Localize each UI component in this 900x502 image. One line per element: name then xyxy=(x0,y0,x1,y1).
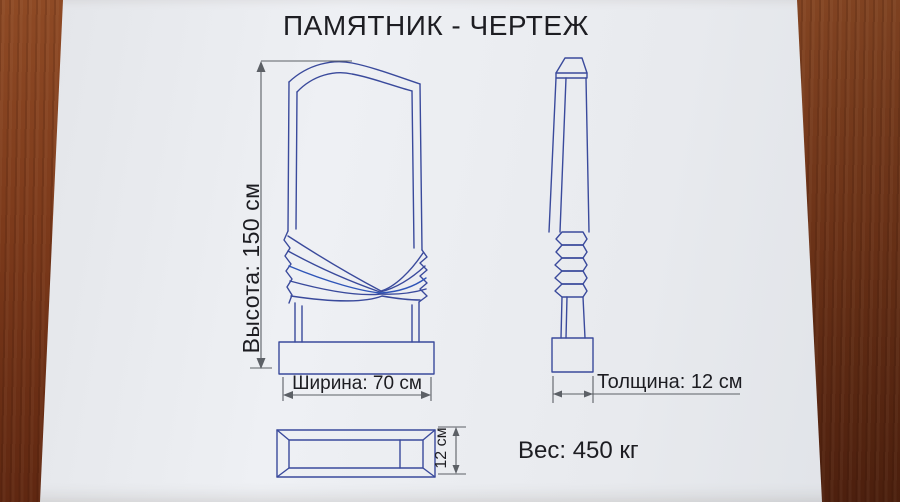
width-dimension-label: Ширина: 70 см xyxy=(284,373,430,395)
height-dimension-label: Высота: 150 см xyxy=(238,158,262,378)
page-title: ПАМЯТНИК - ЧЕРТЕЖ xyxy=(276,10,596,42)
photo-scene: ПАМЯТНИК - ЧЕРТЕЖ Высота: 150 см Ширина:… xyxy=(0,0,900,502)
plate-thickness-dimension-label: 12 см xyxy=(433,417,453,479)
side-thickness-dimension-label: Толщина: 12 см xyxy=(597,371,742,394)
weight-label: Вес: 450 кг xyxy=(518,437,639,465)
